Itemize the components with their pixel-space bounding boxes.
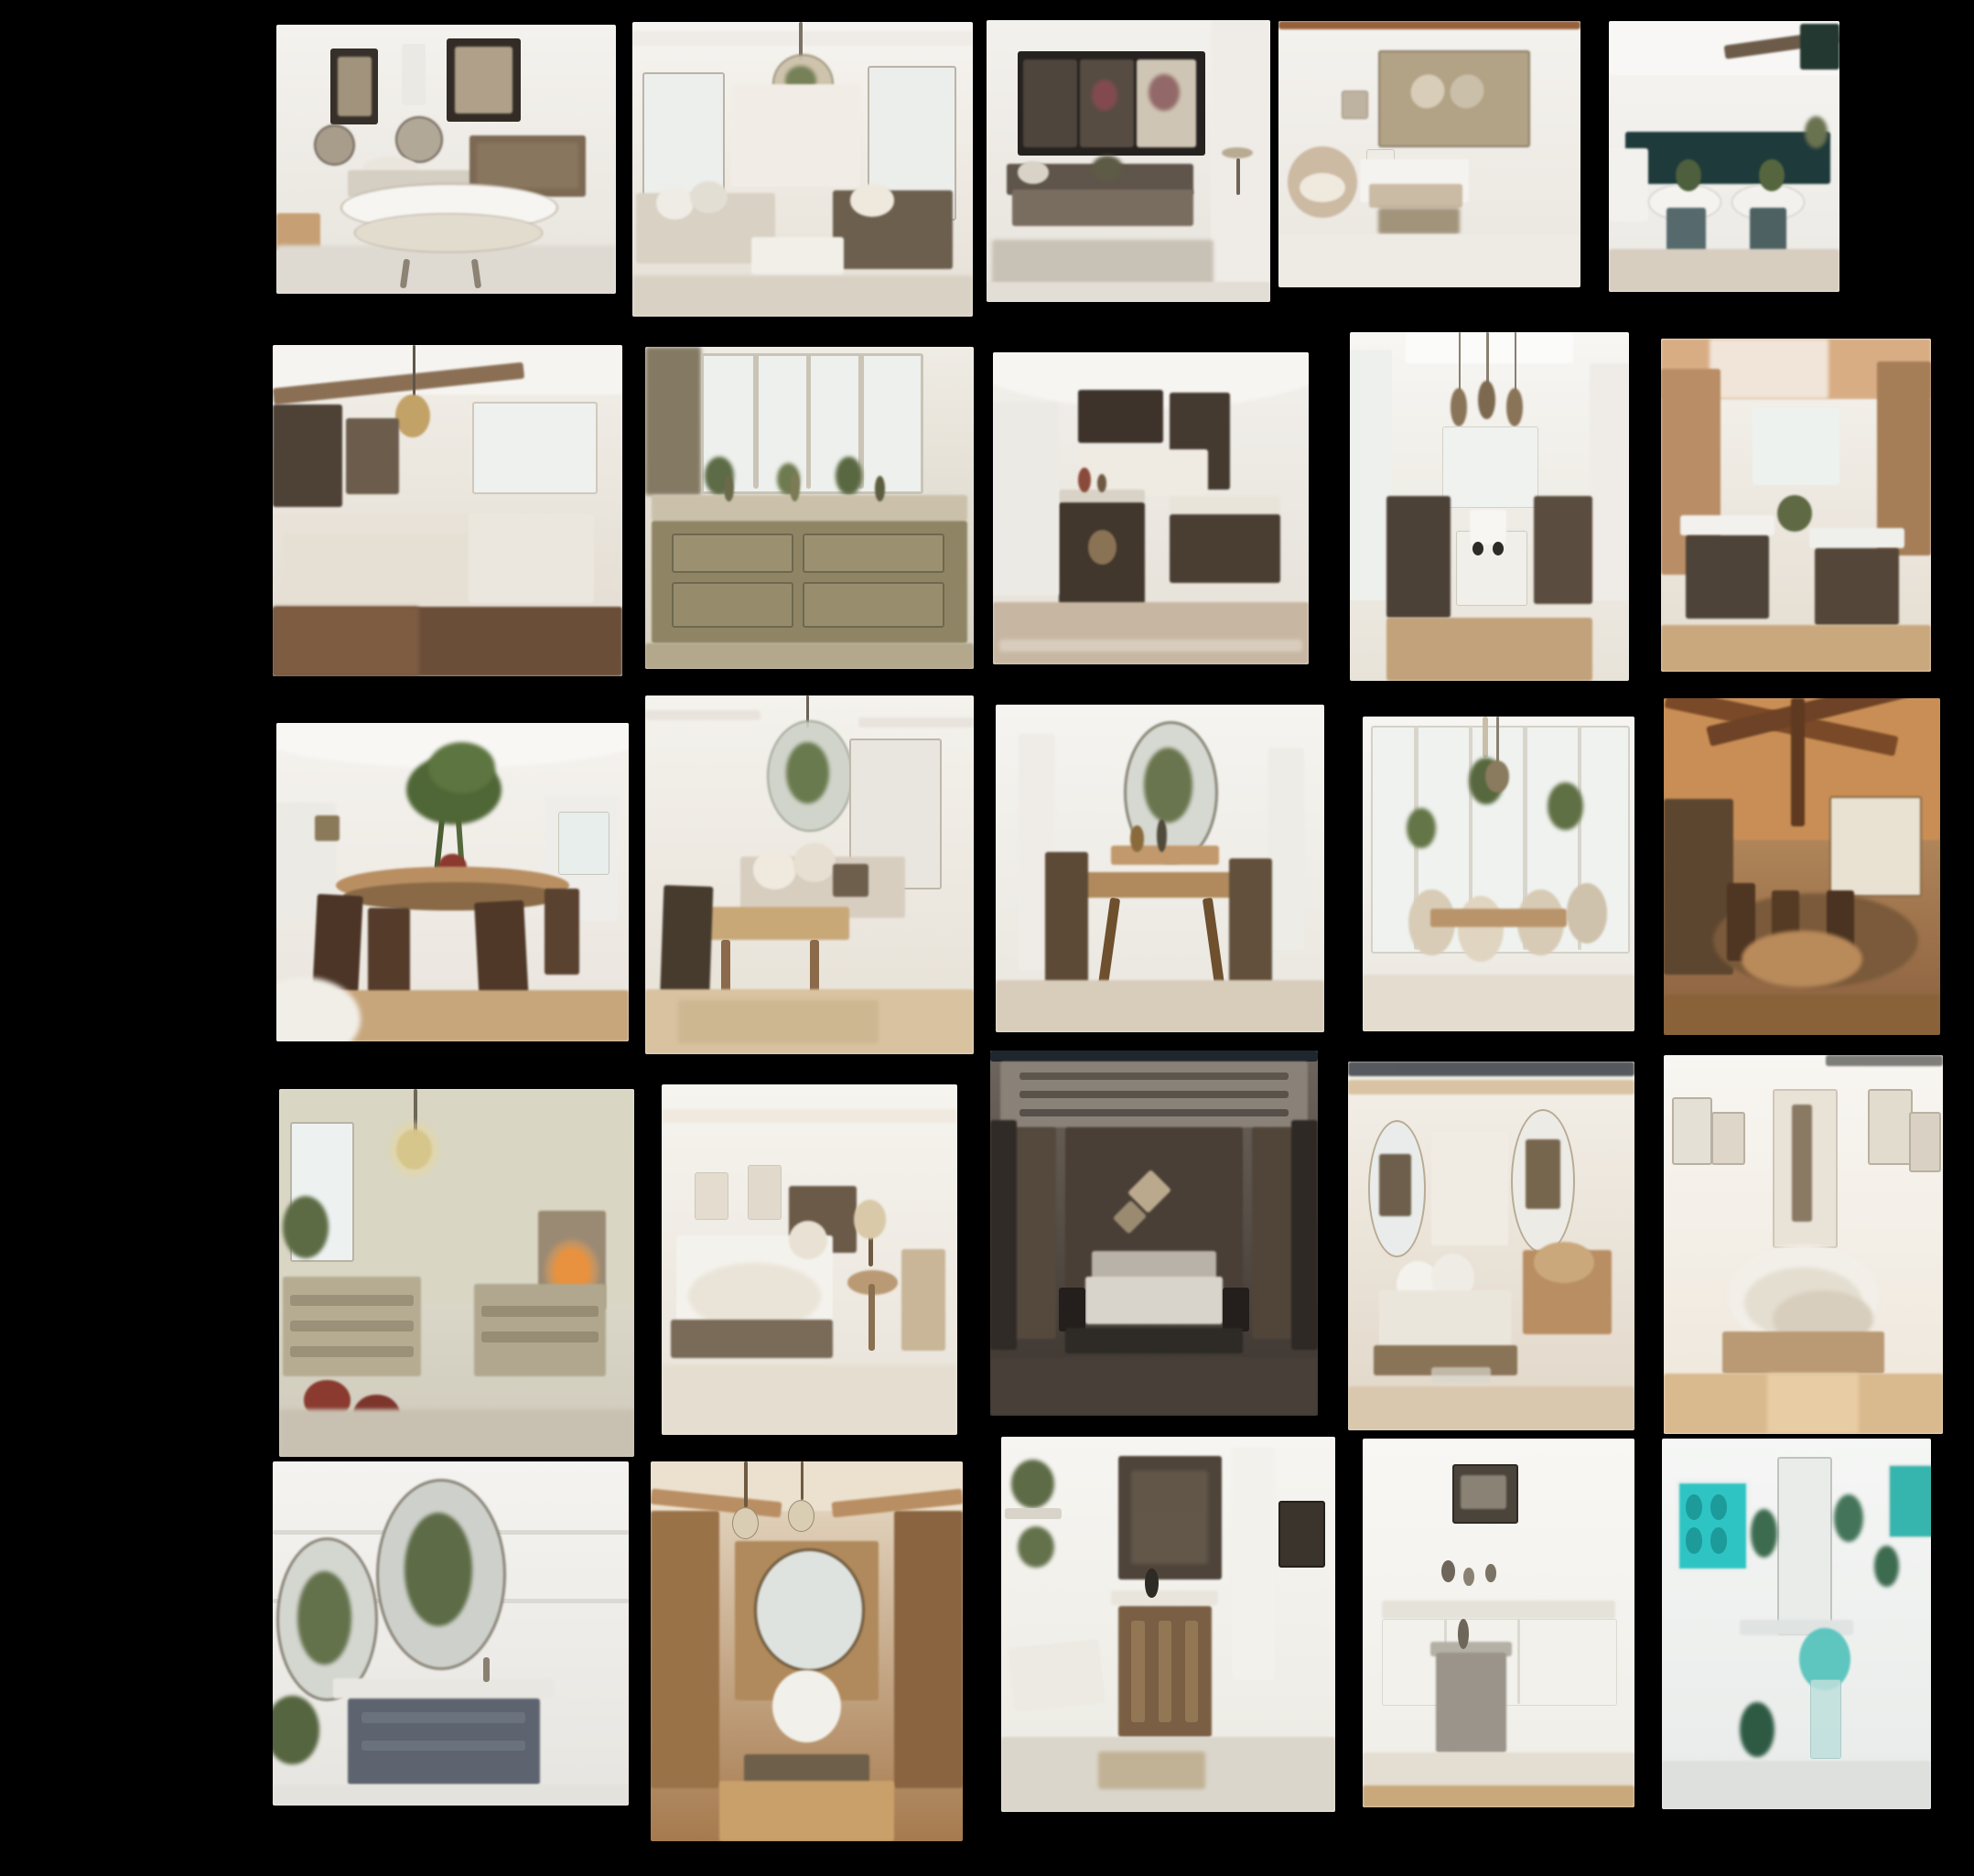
- photo-r4c5-bedroom-bright: [1664, 1055, 1943, 1434]
- photo-fragment: [1777, 1457, 1832, 1634]
- photo-fragment: [1386, 496, 1451, 618]
- photo-fragment: [1369, 184, 1462, 208]
- photo-r2c3-kitchen-espresso: [993, 352, 1309, 664]
- photo-r4c3-bedroom-moody: [990, 1051, 1318, 1416]
- photo-fragment: [283, 534, 468, 607]
- photo-fragment: [1478, 381, 1494, 419]
- photo-fragment: [1686, 535, 1769, 619]
- photo-fragment: [833, 864, 868, 896]
- photo-r3c5-dining-cathedral: [1664, 698, 1940, 1035]
- photo-fragment: [1676, 1480, 1751, 1572]
- photo-fragment: [405, 1513, 472, 1626]
- photo-fragment: [1767, 1374, 1860, 1434]
- photo-fragment: [1406, 332, 1573, 363]
- photo-fragment: [1792, 1105, 1811, 1222]
- photo-fragment: [346, 418, 398, 494]
- photo-fragment: [1291, 1120, 1318, 1350]
- photo-fragment: [753, 353, 758, 489]
- photo-fragment: [1874, 1546, 1898, 1587]
- photo-fragment: [481, 1332, 599, 1342]
- photo-fragment: [273, 404, 342, 507]
- photo-fragment: [290, 1321, 415, 1332]
- photo-fragment: [1088, 530, 1116, 565]
- photo-fragment: [1791, 698, 1805, 826]
- photo-r3c1-dining-plant: [276, 723, 629, 1041]
- photo-fragment: [731, 84, 860, 188]
- photo-fragment: [1223, 1288, 1249, 1332]
- photo-fragment: [1485, 760, 1510, 792]
- photo-fragment: [1092, 156, 1123, 181]
- photo-fragment: [1185, 1621, 1199, 1722]
- photo-fragment: [1382, 1601, 1615, 1619]
- photo-fragment: [481, 1306, 599, 1317]
- photo-fragment: [1268, 748, 1304, 951]
- photo-r4c1-living-fireplace: [279, 1089, 634, 1457]
- photo-r2c2-kitchen-olive: [645, 347, 974, 669]
- photo-fragment: [1009, 1639, 1105, 1712]
- photo-fragment: [1485, 1564, 1496, 1582]
- photo-fragment: [1229, 858, 1272, 993]
- photo-fragment: [1045, 852, 1088, 993]
- photo-r3c2-dining-glass-pendant: [645, 695, 974, 1054]
- photo-fragment: [1609, 249, 1839, 292]
- photo-fragment: [1300, 173, 1345, 202]
- photo-fragment: [1379, 1290, 1511, 1353]
- photo-fragment: [1888, 1464, 1931, 1538]
- photo-fragment: [1815, 548, 1898, 625]
- photo-fragment: [748, 1165, 782, 1219]
- photo-fragment: [283, 1196, 329, 1258]
- photo-fragment: [1379, 1154, 1410, 1217]
- photo-r5c3-bathroom-tapestry: [1001, 1437, 1335, 1812]
- photo-fragment: [1483, 717, 1488, 758]
- photo-fragment: [1144, 748, 1193, 823]
- photo-fragment: [656, 187, 694, 219]
- photo-fragment: [1534, 496, 1592, 604]
- photo-fragment: [645, 710, 760, 721]
- photo-fragment: [1526, 1139, 1560, 1210]
- montage-canvas: [0, 0, 1974, 1876]
- photo-fragment: [1711, 1112, 1746, 1165]
- photo-fragment: [999, 640, 1302, 652]
- photo-fragment: [1092, 80, 1117, 111]
- photo-fragment: [1800, 24, 1839, 70]
- photo-r2c5-kitchen-wood: [1661, 339, 1931, 672]
- photo-fragment: [1170, 514, 1280, 583]
- photo-fragment: [1098, 1752, 1205, 1789]
- photo-fragment: [990, 1051, 1318, 1062]
- photo-fragment: [1686, 1494, 1702, 1520]
- photo-fragment: [1078, 390, 1163, 443]
- photo-r5c2-bathroom-wood-hall: [651, 1461, 963, 1841]
- photo-fragment: [1517, 1619, 1520, 1704]
- photo-r5c1-bathroom-oval-mirrors: [273, 1461, 629, 1806]
- photo-fragment: [333, 1678, 554, 1699]
- photo-fragment: [1013, 1127, 1056, 1339]
- photo-fragment: [1203, 898, 1225, 993]
- photo-fragment: [801, 1461, 804, 1500]
- photo-fragment: [1676, 159, 1701, 192]
- photo-fragment: [645, 347, 701, 495]
- photo-fragment: [651, 1511, 719, 1788]
- photo-r3c4-dining-garden: [1363, 717, 1634, 1031]
- photo-fragment: [1710, 339, 1828, 399]
- photo-fragment: [790, 472, 800, 501]
- photo-fragment: [1451, 388, 1467, 426]
- photo-fragment: [343, 882, 562, 911]
- photo-fragment: [361, 1741, 525, 1751]
- photo-fragment: [1834, 1494, 1863, 1543]
- photo-fragment: [1222, 147, 1253, 158]
- photo-fragment: [993, 403, 1059, 596]
- photo-fragment: [1722, 1332, 1884, 1374]
- photo-r2c4-kitchen-galley: [1350, 332, 1629, 681]
- photo-fragment: [477, 143, 578, 189]
- photo-fragment: [1019, 1073, 1289, 1080]
- photo-fragment: [1170, 496, 1280, 514]
- photo-fragment: [858, 717, 974, 728]
- photo-fragment: [1868, 1089, 1914, 1165]
- photo-fragment: [1145, 1569, 1159, 1599]
- photo-fragment: [1431, 1132, 1509, 1246]
- photo-fragment: [1751, 1509, 1777, 1558]
- photo-fragment: [788, 1500, 814, 1532]
- photo-fragment: [273, 1784, 629, 1806]
- photo-fragment: [1506, 388, 1523, 426]
- photo-fragment: [671, 1320, 834, 1358]
- photo-fragment: [1753, 408, 1839, 485]
- photo-fragment: [1710, 1527, 1727, 1553]
- photo-fragment: [279, 1409, 634, 1457]
- photo-fragment: [672, 582, 793, 628]
- photo-fragment: [1342, 91, 1367, 119]
- photo-fragment: [1019, 1109, 1289, 1116]
- photo-fragment: [1680, 515, 1774, 535]
- photo-fragment: [395, 394, 430, 437]
- photo-fragment: [395, 116, 443, 163]
- photo-fragment: [652, 495, 967, 521]
- photo-fragment: [558, 812, 609, 874]
- photo-fragment: [789, 1221, 827, 1259]
- photo-fragment: [1759, 159, 1785, 192]
- photo-fragment: [1278, 1501, 1325, 1569]
- photo-fragment: [273, 607, 419, 676]
- photo-fragment: [836, 457, 862, 495]
- photo-fragment: [469, 514, 595, 604]
- photo-fragment: [751, 237, 843, 275]
- photo-fragment: [1131, 1471, 1208, 1565]
- photo-fragment: [1441, 1560, 1455, 1582]
- photo-fragment: [1348, 1080, 1634, 1094]
- photo-fragment: [793, 843, 836, 882]
- photo-fragment: [1877, 361, 1931, 555]
- photo-r2c1-kitchen-farmhouse: [273, 345, 622, 676]
- photo-fragment: [1461, 1475, 1506, 1508]
- photo-fragment: [732, 1507, 759, 1539]
- photo-fragment: [1463, 1568, 1474, 1586]
- photo-fragment: [1059, 1288, 1085, 1332]
- photo-fragment: [472, 402, 599, 495]
- photo-fragment: [1363, 975, 1634, 1031]
- photo-fragment: [1012, 189, 1193, 226]
- photo-fragment: [1664, 995, 1940, 1035]
- photo-fragment: [987, 282, 1270, 302]
- photo-fragment: [1363, 1785, 1634, 1807]
- photo-fragment: [1236, 158, 1240, 195]
- photo-fragment: [1011, 1460, 1054, 1508]
- photo-fragment: [474, 1284, 606, 1376]
- photo-r1c2-living-room: [632, 22, 973, 317]
- photo-fragment: [1686, 1527, 1702, 1553]
- photo-fragment: [1710, 1494, 1727, 1520]
- photo-fragment: [724, 476, 734, 501]
- photo-fragment: [1252, 1127, 1295, 1339]
- photo-fragment: [719, 1781, 894, 1841]
- photo-fragment: [338, 57, 372, 116]
- photo-r5c5-bathroom-teal: [1662, 1439, 1931, 1809]
- photo-fragment: [389, 1122, 438, 1177]
- photo-fragment: [662, 1109, 957, 1123]
- photo-fragment: [475, 900, 530, 1005]
- photo-fragment: [1350, 350, 1392, 600]
- photo-fragment: [1809, 528, 1904, 548]
- photo-fragment: [990, 1357, 1318, 1416]
- photo-fragment: [1548, 782, 1583, 830]
- photo-fragment: [1232, 1448, 1275, 1680]
- photo-fragment: [483, 1657, 490, 1681]
- photo-fragment: [744, 1461, 747, 1507]
- photo-fragment: [1609, 148, 1648, 221]
- photo-fragment: [850, 184, 894, 216]
- photo-fragment: [993, 602, 1309, 664]
- photo-r1c5-kitchen-teal-bar: [1609, 21, 1839, 292]
- photo-fragment: [1085, 1277, 1223, 1324]
- photo-fragment: [276, 245, 616, 294]
- photo-fragment: [990, 1120, 1017, 1350]
- photo-r1c1-living-lounge: [276, 25, 616, 294]
- photo-fragment: [315, 815, 340, 841]
- photo-fragment: [1534, 1242, 1594, 1282]
- photo-fragment: [695, 1172, 729, 1220]
- photo-fragment: [1590, 363, 1629, 600]
- photo-fragment: [1436, 1653, 1506, 1752]
- photo-fragment: [1211, 20, 1270, 302]
- photo-fragment: [290, 1295, 415, 1306]
- photo-fragment: [1278, 21, 1580, 29]
- photo-fragment: [1278, 234, 1580, 287]
- photo-r4c4-bedroom-arches: [1348, 1062, 1634, 1430]
- photo-fragment: [1348, 1386, 1634, 1430]
- photo-fragment: [273, 1696, 319, 1764]
- photo-fragment: [1625, 132, 1830, 183]
- photo-fragment: [1084, 872, 1246, 899]
- photo-fragment: [402, 44, 426, 106]
- photo-fragment: [428, 742, 495, 793]
- photo-fragment: [1378, 208, 1460, 234]
- photo-fragment: [701, 907, 849, 939]
- photo-fragment: [1458, 1619, 1469, 1648]
- photo-fragment: [1005, 1508, 1062, 1519]
- photo-r5c4-bathroom-minimal: [1363, 1439, 1634, 1807]
- photo-r4c2-bedroom-sepia: [662, 1084, 957, 1435]
- photo-fragment: [753, 850, 796, 889]
- photo-fragment: [1515, 332, 1516, 392]
- photo-fragment: [992, 240, 1214, 287]
- photo-fragment: [1149, 74, 1180, 111]
- photo-fragment: [1159, 1621, 1172, 1722]
- photo-fragment: [545, 889, 580, 975]
- photo-fragment: [1430, 909, 1567, 928]
- photo-fragment: [1470, 510, 1506, 544]
- photo-fragment: [1111, 1590, 1218, 1605]
- photo-fragment: [1157, 819, 1167, 852]
- photo-fragment: [632, 31, 973, 46]
- photo-fragment: [455, 47, 512, 114]
- photo-fragment: [368, 908, 410, 1003]
- photo-fragment: [662, 1364, 957, 1435]
- photo-fragment: [1777, 495, 1812, 532]
- photo-fragment: [868, 1284, 874, 1351]
- photo-fragment: [1909, 1112, 1941, 1172]
- photo-fragment: [1662, 1761, 1931, 1809]
- photo-fragment: [1740, 1702, 1774, 1758]
- photo-fragment: [645, 643, 974, 669]
- photo-fragment: [786, 742, 829, 803]
- photo-fragment: [1496, 717, 1500, 764]
- photo-fragment: [1459, 332, 1461, 392]
- photo-fragment: [1661, 625, 1931, 672]
- photo-fragment: [678, 1000, 879, 1043]
- photo-fragment: [1493, 542, 1504, 555]
- photo-fragment: [901, 1249, 945, 1351]
- photo-fragment: [1065, 1328, 1242, 1353]
- photo-fragment: [361, 1712, 525, 1722]
- photo-fragment: [996, 980, 1324, 1032]
- photo-fragment: [1386, 618, 1593, 681]
- photo-fragment: [1348, 1062, 1634, 1076]
- photo-fragment: [1810, 1679, 1841, 1759]
- photo-fragment: [290, 1346, 415, 1357]
- photo-fragment: [803, 534, 944, 573]
- photo-fragment: [1672, 1097, 1712, 1165]
- photo-fragment: [806, 353, 811, 489]
- photo-fragment: [854, 1200, 887, 1238]
- photo-fragment: [754, 1548, 866, 1672]
- photo-r1c4-bedroom-tapestry: [1278, 21, 1580, 287]
- photo-fragment: [1442, 426, 1539, 509]
- photo-fragment: [1826, 1055, 1943, 1066]
- photo-fragment: [1019, 1091, 1289, 1098]
- photo-r1c3-living-daybed: [987, 20, 1270, 302]
- photo-fragment: [1131, 1621, 1145, 1722]
- photo-fragment: [1018, 1526, 1054, 1568]
- photo-fragment: [354, 213, 543, 253]
- photo-fragment: [1018, 161, 1049, 184]
- photo-fragment: [632, 275, 973, 317]
- photo-fragment: [672, 534, 793, 573]
- photo-fragment: [314, 124, 355, 166]
- photo-r3c3-dining-arch-mirror: [996, 705, 1324, 1032]
- photo-fragment: [803, 582, 944, 628]
- photo-fragment: [1567, 883, 1608, 943]
- photo-fragment: [1431, 1367, 1492, 1382]
- photo-fragment: [297, 1571, 351, 1665]
- photo-fragment: [1486, 332, 1488, 384]
- photo-fragment: [894, 1511, 963, 1788]
- photo-fragment: [875, 476, 885, 501]
- photo-fragment: [1023, 59, 1077, 146]
- photo-fragment: [1097, 898, 1120, 993]
- photo-fragment: [701, 353, 923, 494]
- photo-fragment: [772, 1670, 841, 1742]
- photo-fragment: [1829, 796, 1922, 898]
- photo-fragment: [1130, 825, 1143, 852]
